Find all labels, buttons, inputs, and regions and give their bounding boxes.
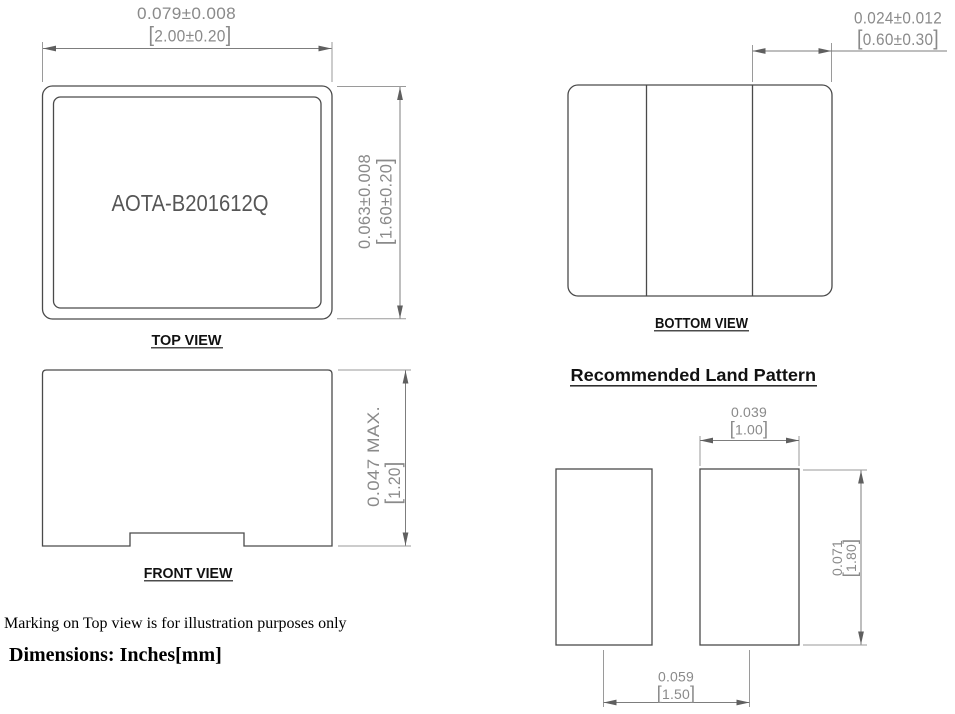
- svg-text:Recommended Land Pattern: Recommended Land Pattern: [571, 365, 817, 385]
- svg-text:[1.20]: [1.20]: [382, 462, 405, 505]
- svg-text:0.063±0.008: 0.063±0.008: [356, 154, 374, 249]
- svg-text:BOTTOM VIEW: BOTTOM VIEW: [655, 315, 749, 332]
- svg-text:[1.60±0.20]: [1.60±0.20]: [373, 158, 396, 246]
- svg-text:0.039: 0.039: [731, 404, 767, 420]
- svg-text:FRONT VIEW: FRONT VIEW: [144, 565, 233, 582]
- svg-text:[1.50]: [1.50]: [657, 683, 695, 703]
- svg-text:[0.60±0.30]: [0.60±0.30]: [857, 27, 939, 50]
- svg-text:Marking on Top view is for ill: Marking on Top view is for illustration …: [4, 615, 347, 632]
- svg-text:[1.00]: [1.00]: [730, 419, 768, 439]
- svg-text:[2.00±0.20]: [2.00±0.20]: [149, 24, 232, 47]
- svg-text:0.024±0.012: 0.024±0.012: [854, 10, 942, 28]
- svg-text:AOTA-B201612Q: AOTA-B201612Q: [112, 190, 269, 216]
- svg-text:[1.80]: [1.80]: [840, 539, 860, 577]
- svg-text:TOP VIEW: TOP VIEW: [152, 332, 223, 349]
- svg-text:0.079±0.008: 0.079±0.008: [137, 5, 236, 23]
- svg-text:0.059: 0.059: [658, 669, 694, 685]
- svg-text:Dimensions: Inches[mm]: Dimensions: Inches[mm]: [9, 644, 222, 666]
- svg-text:0.047 MAX.: 0.047 MAX.: [365, 406, 383, 507]
